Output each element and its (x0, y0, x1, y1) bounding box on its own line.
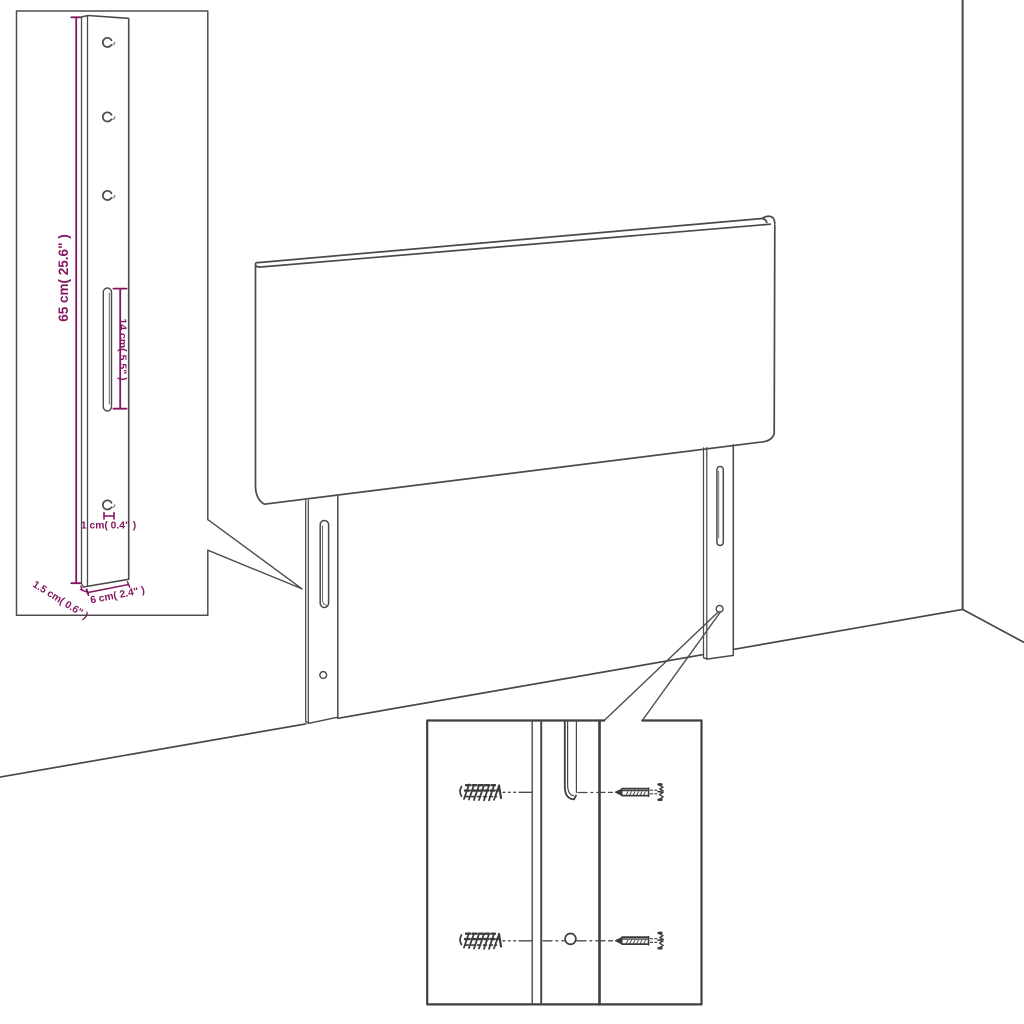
svg-text:65 cm( 25.6" ): 65 cm( 25.6" ) (56, 234, 71, 321)
svg-text:1 cm( 0.4" ): 1 cm( 0.4" ) (81, 520, 136, 531)
svg-text:14 cm( 5.5" ): 14 cm( 5.5" ) (117, 318, 129, 380)
svg-text:6 cm( 2.4" ): 6 cm( 2.4" ) (89, 585, 145, 606)
